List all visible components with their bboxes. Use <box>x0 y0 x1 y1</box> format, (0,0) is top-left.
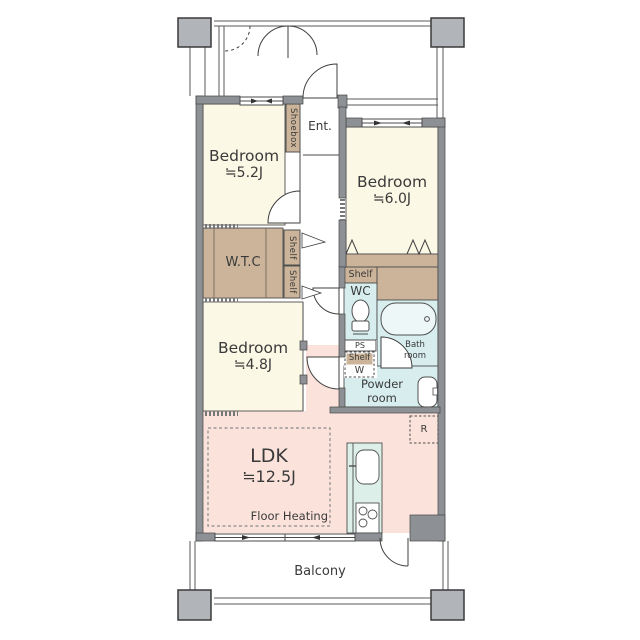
common-door-arc-right <box>288 26 317 55</box>
bedroom-a-size: ≒5.2J <box>225 165 263 182</box>
toilet-bowl <box>352 300 369 322</box>
refrigerator-label: R <box>410 416 438 443</box>
pipe-space-label: PS <box>344 340 376 351</box>
bedroom-c-size: ≒4.8J <box>234 357 272 374</box>
powder-tap <box>433 388 438 395</box>
column-top-left <box>178 18 211 47</box>
closet-strip <box>346 254 438 267</box>
kitchen-sink <box>356 450 379 484</box>
floor-plan-canvas <box>0 0 640 640</box>
bedroom-b-name: Bedroom <box>357 173 427 191</box>
bedroom-a-name: Bedroom <box>209 147 279 165</box>
toilet-tank <box>352 321 369 331</box>
floor-plan: Bedroom ≒5.2J Bedroom ≒6.0J Bedroom ≒4.8… <box>0 0 640 640</box>
common-door-arc-left <box>258 26 288 56</box>
shelf-label-3: Shelf <box>344 267 377 283</box>
bedroom-c-label: Bedroom ≒4.8J <box>203 302 303 411</box>
bedroom-b-size: ≒6.0J <box>373 191 411 208</box>
shelf-label-2: Shelf <box>284 266 300 298</box>
bedroom-c-name: Bedroom <box>218 339 288 357</box>
kitchen <box>347 443 382 533</box>
column-bottom-left <box>178 590 211 620</box>
bedroom-a-label: Bedroom ≒5.2J <box>203 104 285 225</box>
closet-block <box>377 267 438 300</box>
powder-label: Powder room <box>358 377 406 406</box>
shelf-door-mark-1 <box>302 233 325 248</box>
ldk-size: ≒12.5J <box>242 468 296 487</box>
window-bedroom-b <box>362 119 422 127</box>
balcony-door-arc <box>380 538 408 566</box>
dashed-door-arc <box>225 26 250 51</box>
floor-heating-label: Floor Heating <box>230 509 328 524</box>
bath-label: Bath room <box>400 337 430 364</box>
column-top-right <box>431 18 464 47</box>
column-bottom-right <box>431 590 464 620</box>
washer-label: W <box>346 364 373 377</box>
window-ldk-balcony <box>215 534 355 541</box>
wtc-label: W.T.C <box>203 228 283 298</box>
wc-label: WC <box>344 284 377 299</box>
shoebox-label: Shoebox <box>286 104 300 152</box>
balcony-label: Balcony <box>272 563 368 581</box>
front-door <box>303 64 337 98</box>
shelf-label-1: Shelf <box>284 230 300 265</box>
ldk-name: LDK <box>250 445 288 467</box>
bathtub <box>381 303 436 335</box>
entrance-label: Ent. <box>300 116 340 136</box>
bedroom-b-label: Bedroom ≒6.0J <box>346 127 438 254</box>
ldk-label: LDK ≒12.5J <box>208 440 330 492</box>
